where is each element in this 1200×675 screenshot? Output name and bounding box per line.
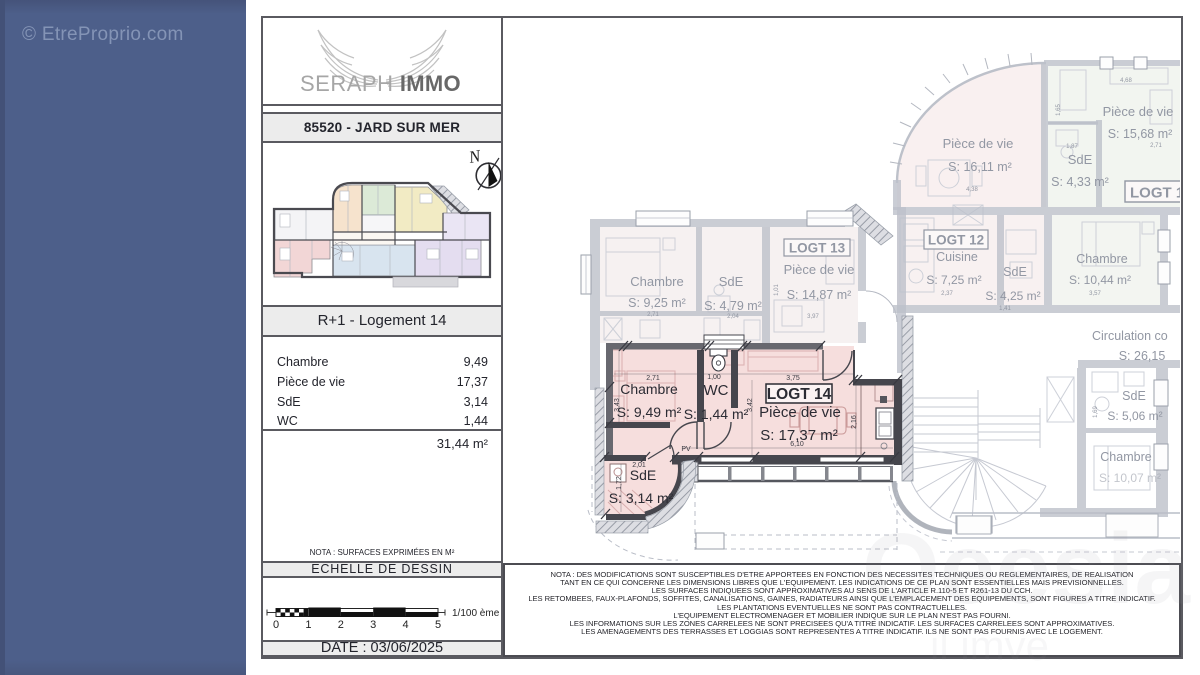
svg-text:2: 2 [338,619,344,631]
svg-text:3: 3 [370,619,376,631]
svg-text:1/100 ème: 1/100 ème [452,608,500,619]
svg-text:5: 5 [435,619,441,631]
svg-text:4: 4 [403,619,409,631]
svg-text:0: 0 [273,619,279,631]
svg-text:1: 1 [305,619,311,631]
